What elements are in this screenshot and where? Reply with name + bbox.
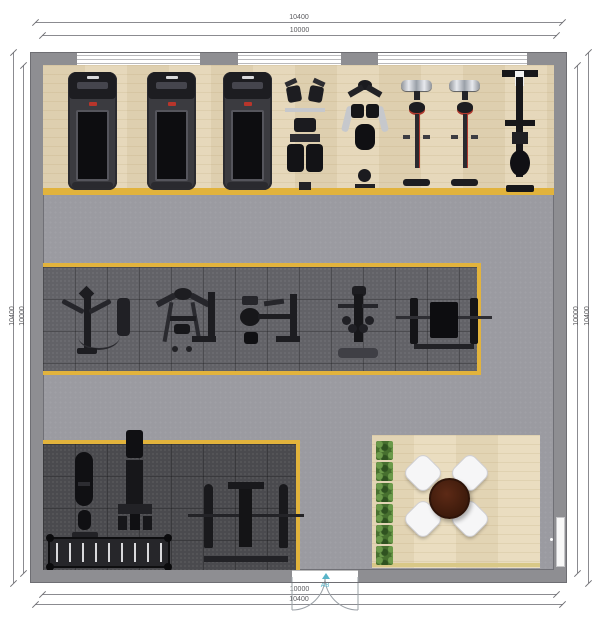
plant: [376, 546, 393, 565]
plant: [376, 504, 393, 523]
plant: [376, 441, 393, 460]
window-3: [378, 52, 527, 65]
treadmill-screen: [77, 82, 108, 89]
treadmill-3: [223, 72, 272, 190]
bike-seat: [409, 102, 425, 113]
planter-row: [376, 441, 393, 567]
dim-tick: [10, 580, 17, 587]
round-table: [429, 478, 470, 519]
seated-leg-machine: [283, 78, 327, 190]
bottom-wall-right: [358, 570, 567, 583]
side-door-leaf: [556, 517, 565, 567]
floor-plan-canvas: 10400 10000 10000 10400 10400 10000 1000…: [0, 0, 600, 633]
pec-deck-machine: [60, 290, 138, 356]
top-wall-corner-left: [30, 52, 77, 65]
treadmill-brand-mark: [87, 76, 99, 79]
top-wall-pillar-2: [341, 52, 378, 65]
dim-left-outer-label: 10400: [9, 296, 17, 336]
right-wall: [554, 52, 567, 583]
dim-top-inner-line: [42, 35, 557, 36]
dim-top-outer-line: [35, 22, 563, 23]
dim-tick: [20, 570, 27, 577]
left-wall: [30, 52, 43, 583]
lounge-edge-stripe: [372, 563, 540, 567]
dim-top-outer-label: 10400: [35, 14, 563, 22]
dim-left-inner-label: 10000: [19, 296, 27, 336]
treadmill-base: [72, 182, 113, 188]
exercise-bike-1: [401, 80, 432, 186]
plant: [376, 525, 393, 544]
dim-right-outer-label: 10400: [584, 296, 592, 336]
bottom-wall-left: [30, 570, 292, 583]
exercise-bike-2: [449, 80, 480, 186]
bench-press-station-bottom: [196, 480, 296, 564]
entrance-marker-icon: [322, 573, 330, 579]
entrance-door-swing: [285, 575, 365, 615]
side-door-handle: [550, 538, 553, 541]
dumbbell-rack-slots: [56, 543, 162, 562]
entrance-door-label: A8: [292, 582, 358, 589]
seated-row-machine: [234, 292, 306, 352]
window-1: [77, 52, 200, 65]
dim-top-inner-label: 10000: [42, 27, 557, 35]
top-wall-corner-right: [527, 52, 567, 65]
weight-stack-machine: [72, 452, 98, 538]
multi-station-machine: [344, 80, 386, 188]
dim-right-inner-label: 10000: [573, 296, 581, 336]
treadmill-1: [68, 72, 117, 190]
smith-machine: [116, 430, 154, 534]
plant: [376, 483, 393, 502]
dim-tick: [574, 570, 581, 577]
treadmill-belt: [76, 110, 109, 181]
treadmill-2: [147, 72, 196, 190]
lat-pulldown-machine: [148, 288, 220, 356]
dumbbell-rack: [48, 537, 170, 568]
treadmill-emblem: [89, 102, 97, 106]
top-wall-pillar-1: [200, 52, 238, 65]
plant: [376, 462, 393, 481]
barbell-plate-rack: [502, 70, 538, 192]
dim-tick: [585, 580, 592, 587]
window-2: [238, 52, 341, 65]
bench-press-station-middle: [406, 294, 482, 352]
bike-handlebar: [401, 80, 432, 91]
dumbbell-stand-with-bench: [334, 286, 382, 358]
